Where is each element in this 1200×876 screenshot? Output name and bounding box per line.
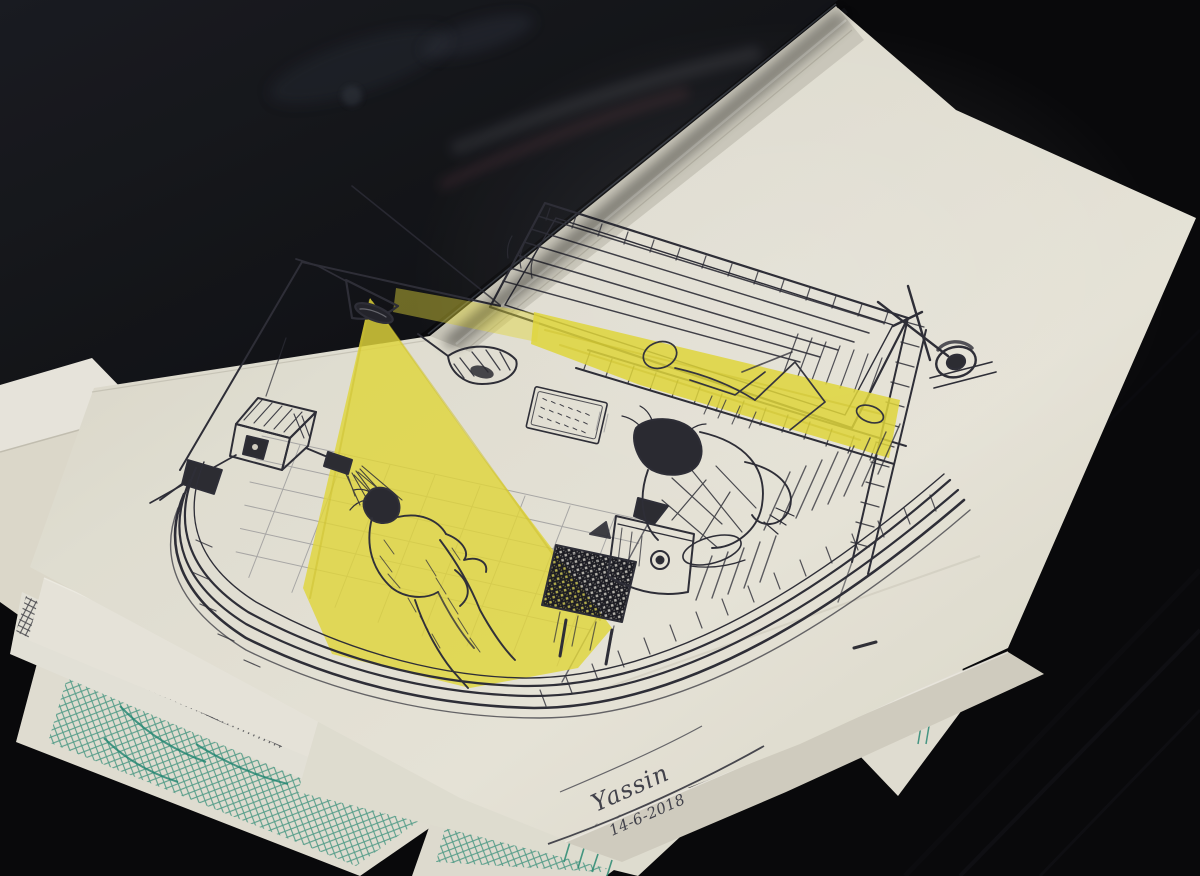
vignette (0, 0, 1200, 876)
photo-of-sketches: Yassin 14-6-2018 (0, 0, 1200, 876)
